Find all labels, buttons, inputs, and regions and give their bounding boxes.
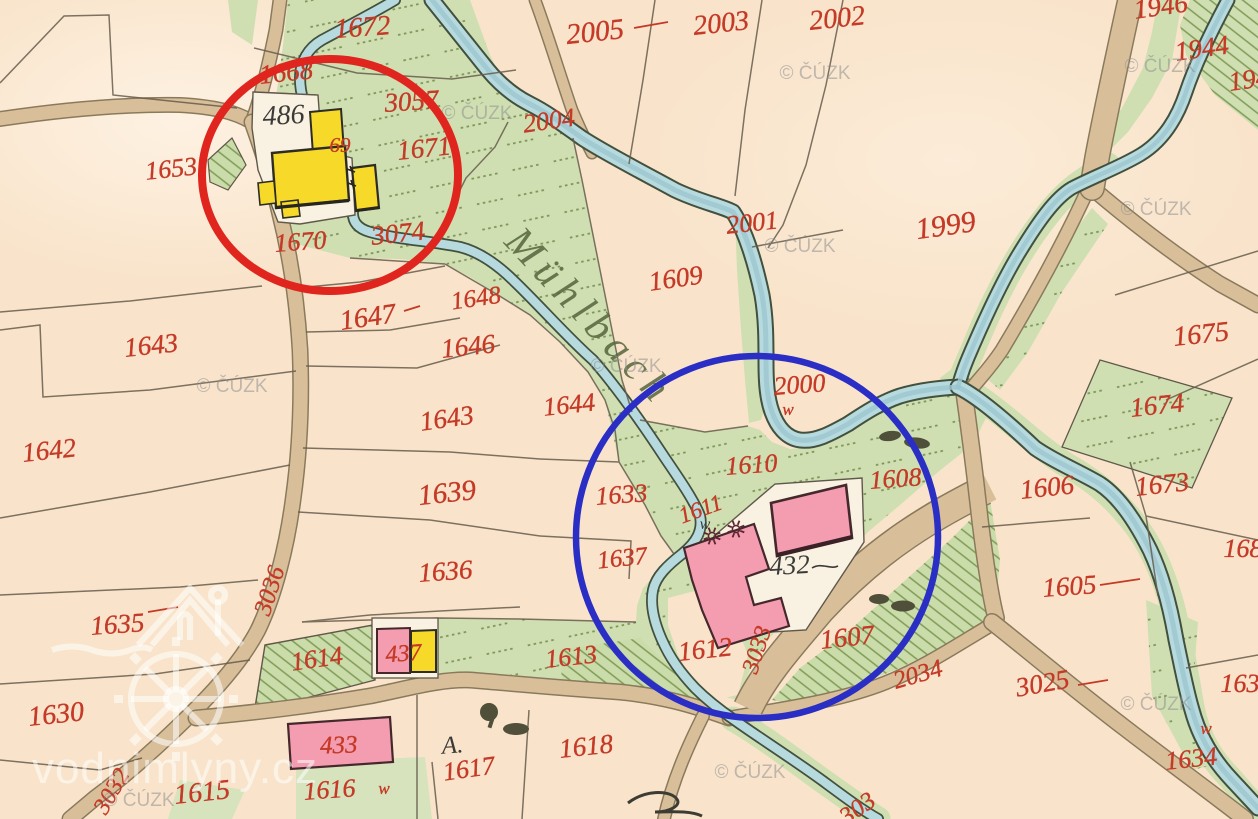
svg-text:1674: 1674 xyxy=(1129,387,1186,422)
svg-text:1633: 1633 xyxy=(594,478,648,511)
svg-text:1639: 1639 xyxy=(417,474,479,512)
svg-text:168: 168 xyxy=(1224,534,1258,563)
svg-text:1672: 1672 xyxy=(333,10,391,45)
svg-text:1607: 1607 xyxy=(819,619,877,655)
svg-text:486: 486 xyxy=(262,99,306,132)
svg-text:1634: 1634 xyxy=(1164,741,1219,775)
svg-text:vodnimlyny.cz: vodnimlyny.cz xyxy=(32,744,318,793)
svg-text:© ČÚZK: © ČÚZK xyxy=(442,102,513,124)
svg-text:163: 163 xyxy=(1221,669,1258,698)
svg-text:1612: 1612 xyxy=(677,631,734,666)
svg-text:1643: 1643 xyxy=(123,327,180,362)
svg-text:w: w xyxy=(700,516,711,533)
svg-text:1671: 1671 xyxy=(396,130,453,165)
svg-text:194: 194 xyxy=(1227,61,1258,96)
svg-text:2001: 2001 xyxy=(725,205,780,239)
svg-text:2005: 2005 xyxy=(565,13,626,51)
svg-text:2003: 2003 xyxy=(692,5,751,42)
svg-text:433: 433 xyxy=(320,731,358,759)
svg-text:1642: 1642 xyxy=(21,432,78,467)
svg-text:3074: 3074 xyxy=(369,215,427,251)
svg-text:1606: 1606 xyxy=(1019,469,1076,505)
svg-text:w: w xyxy=(1200,719,1212,738)
svg-text:1635: 1635 xyxy=(89,607,145,641)
svg-text:1610: 1610 xyxy=(724,448,778,481)
svg-text:© ČÚZK: © ČÚZK xyxy=(1121,198,1192,220)
svg-text:2000: 2000 xyxy=(772,368,826,401)
svg-text:1646: 1646 xyxy=(440,328,497,364)
svg-text:1670: 1670 xyxy=(273,225,327,258)
svg-text:© ČÚZK: © ČÚZK xyxy=(591,355,662,377)
svg-text:© ČÚZK: © ČÚZK xyxy=(715,761,786,783)
svg-text:1630: 1630 xyxy=(27,696,86,733)
svg-text:1608: 1608 xyxy=(868,462,922,495)
svg-text:1618: 1618 xyxy=(558,728,615,764)
svg-text:1653: 1653 xyxy=(144,151,199,185)
svg-text:1636: 1636 xyxy=(417,554,473,588)
svg-text:437: 437 xyxy=(385,640,424,669)
svg-text:1605: 1605 xyxy=(1041,569,1097,603)
svg-text:432: 432 xyxy=(769,549,811,581)
svg-text:1637: 1637 xyxy=(596,542,650,574)
svg-text:© ČÚZK: © ČÚZK xyxy=(197,375,268,397)
svg-text:1613: 1613 xyxy=(544,639,599,673)
svg-text:1644: 1644 xyxy=(542,387,597,421)
svg-text:w: w xyxy=(782,400,794,419)
svg-text:1675: 1675 xyxy=(1172,316,1231,353)
svg-text:69: 69 xyxy=(330,133,352,157)
svg-text:2002: 2002 xyxy=(808,0,867,37)
svg-text:© ČÚZK: © ČÚZK xyxy=(765,235,836,257)
svg-text:w: w xyxy=(378,779,390,798)
svg-text:© ČÚZK: © ČÚZK xyxy=(780,62,851,84)
svg-text:© ČÚZK: © ČÚZK xyxy=(1121,693,1192,715)
svg-text:© ČÚZK: © ČÚZK xyxy=(1125,55,1196,77)
svg-text:1673: 1673 xyxy=(1134,466,1191,501)
